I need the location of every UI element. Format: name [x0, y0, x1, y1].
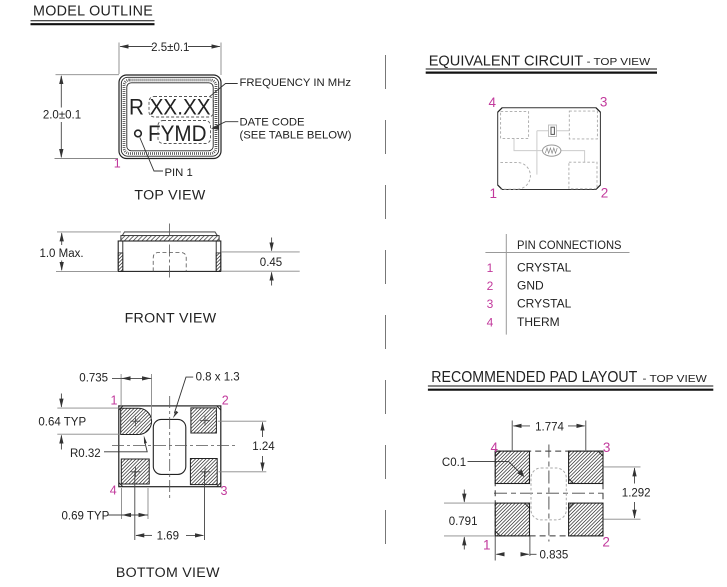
- svg-text:GND: GND: [517, 279, 544, 293]
- svg-text:1.774: 1.774: [535, 421, 564, 433]
- svg-text:0.8 x 1.3: 0.8 x 1.3: [196, 371, 240, 383]
- svg-text:0.69 TYP: 0.69 TYP: [62, 510, 110, 522]
- svg-text:CRYSTAL: CRYSTAL: [517, 297, 572, 311]
- svg-text:FYMD: FYMD: [148, 121, 207, 146]
- svg-text:EQUIVALENT CIRCUIT: EQUIVALENT CIRCUIT: [429, 52, 584, 69]
- svg-text:2: 2: [601, 186, 609, 201]
- svg-text:4: 4: [110, 484, 117, 498]
- svg-text:4: 4: [491, 440, 499, 455]
- svg-text:3: 3: [487, 297, 494, 311]
- svg-text:1.0 Max.: 1.0 Max.: [39, 248, 83, 260]
- svg-text:0.791: 0.791: [449, 516, 478, 528]
- svg-text:3: 3: [603, 440, 611, 455]
- svg-text:BOTTOM VIEW: BOTTOM VIEW: [116, 565, 220, 581]
- svg-text:0.835: 0.835: [540, 550, 569, 562]
- svg-text:2.0±0.1: 2.0±0.1: [43, 109, 81, 121]
- svg-text:1: 1: [111, 393, 118, 407]
- svg-text:0.64 TYP: 0.64 TYP: [38, 416, 86, 428]
- svg-text:FRONT VIEW: FRONT VIEW: [125, 311, 217, 327]
- svg-text:1.69: 1.69: [157, 531, 179, 543]
- svg-text:4: 4: [487, 316, 494, 330]
- svg-text:CRYSTAL: CRYSTAL: [517, 261, 572, 275]
- svg-text:3: 3: [600, 95, 608, 110]
- svg-text:1.24: 1.24: [252, 441, 275, 453]
- svg-text:2: 2: [602, 534, 610, 549]
- svg-text:2: 2: [222, 394, 229, 408]
- svg-text:- TOP VIEW: - TOP VIEW: [587, 56, 651, 68]
- svg-text:PIN 1: PIN 1: [165, 167, 193, 179]
- svg-text:FREQUENCY IN MHz: FREQUENCY IN MHz: [240, 77, 352, 89]
- svg-text:0.45: 0.45: [260, 257, 282, 269]
- svg-text:1: 1: [490, 186, 498, 201]
- svg-text:RECOMMENDED PAD LAYOUT: RECOMMENDED PAD LAYOUT: [431, 369, 637, 386]
- svg-text:MODEL OUTLINE: MODEL OUTLINE: [33, 3, 153, 19]
- svg-text:DATE CODE: DATE CODE: [240, 117, 306, 129]
- svg-text:0.735: 0.735: [79, 373, 108, 385]
- svg-text:4: 4: [489, 95, 497, 110]
- svg-text:TOP VIEW: TOP VIEW: [134, 188, 206, 204]
- svg-text:1: 1: [483, 538, 491, 553]
- svg-text:2.5±0.1: 2.5±0.1: [151, 42, 189, 54]
- svg-text:C0.1: C0.1: [442, 457, 466, 469]
- svg-text:THERM: THERM: [517, 315, 560, 329]
- svg-text:3: 3: [221, 484, 228, 498]
- svg-text:1: 1: [487, 261, 494, 275]
- svg-text:2: 2: [487, 279, 494, 293]
- svg-text:R0.32: R0.32: [70, 448, 101, 460]
- svg-text:R XX.XX: R XX.XX: [129, 95, 211, 120]
- svg-text:(SEE TABLE BELOW): (SEE TABLE BELOW): [240, 130, 352, 142]
- svg-text:- TOP VIEW: - TOP VIEW: [643, 373, 707, 385]
- svg-text:PIN CONNECTIONS: PIN CONNECTIONS: [517, 238, 622, 252]
- svg-text:1.292: 1.292: [622, 487, 651, 499]
